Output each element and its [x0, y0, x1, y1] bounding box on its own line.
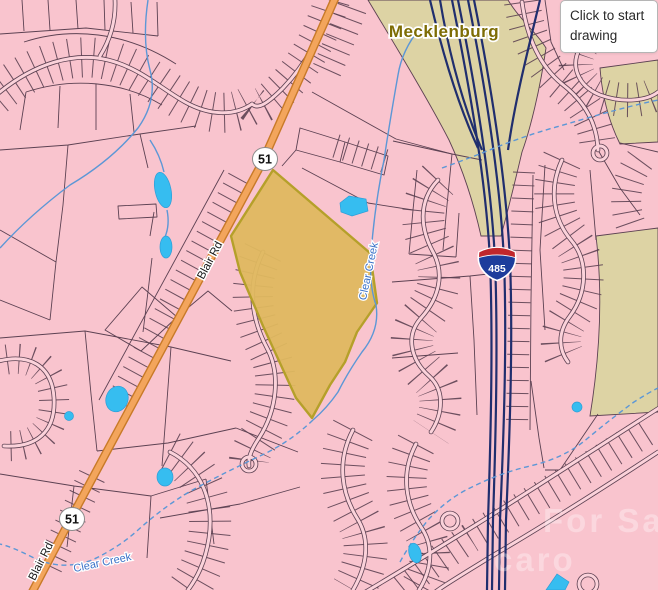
watermark-line2: caro	[494, 541, 576, 578]
nc51-shield-bottom-label: 51	[65, 513, 79, 527]
map-application: 51 51 485 Mecklenburg Blair Rd Blair Rd …	[0, 0, 658, 590]
county-label: Mecklenburg	[389, 22, 499, 41]
map-canvas[interactable]: 51 51 485 Mecklenburg Blair Rd Blair Rd …	[0, 0, 658, 590]
nc51-shield-bottom: 51	[60, 508, 85, 531]
i485-shield-label: 485	[488, 263, 506, 275]
nc51-shield-top: 51	[253, 148, 278, 171]
nc51-shield-top-label: 51	[258, 153, 272, 167]
drawing-tooltip: Click to start drawing	[560, 0, 658, 53]
drawing-tooltip-text: Click to start drawing	[570, 8, 644, 43]
watermark-line1: For Sa	[543, 502, 658, 539]
